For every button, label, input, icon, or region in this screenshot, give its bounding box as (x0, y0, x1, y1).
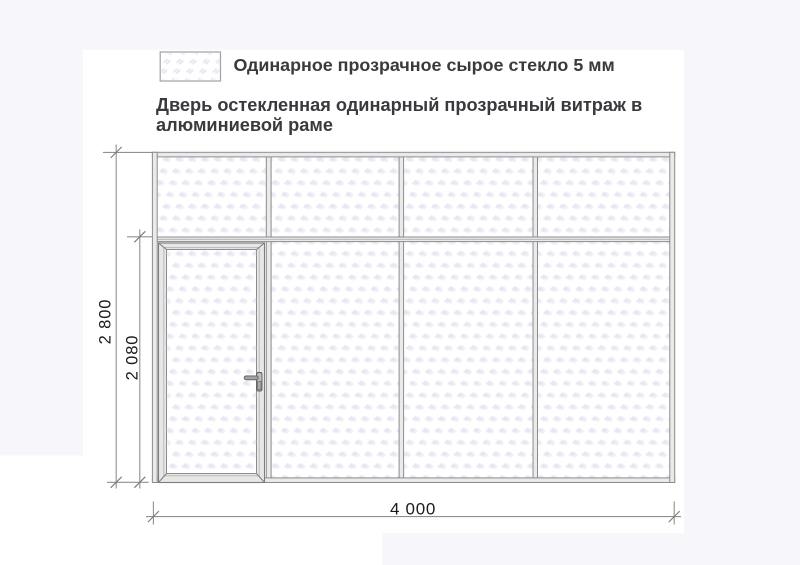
svg-text:2 080: 2 080 (123, 335, 141, 381)
svg-text:4 000: 4 000 (390, 499, 436, 518)
svg-text:Дверь остекленная одинарный пр: Дверь остекленная одинарный прозрачный в… (156, 95, 642, 115)
svg-text:2 800: 2 800 (96, 299, 114, 345)
svg-text:алюминиевой раме: алюминиевой раме (156, 115, 333, 135)
svg-text:Одинарное прозрачное сырое сте: Одинарное прозрачное сырое стекло 5 мм (234, 55, 615, 75)
